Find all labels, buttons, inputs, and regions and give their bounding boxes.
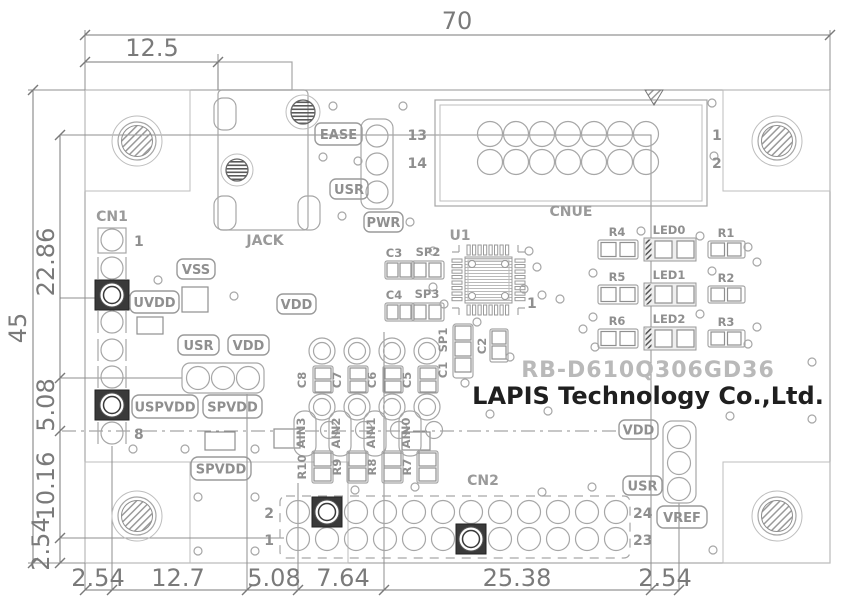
connector-cn1 [95, 228, 129, 444]
dim-jack-offset: 12.5 [125, 34, 178, 62]
label-spvdd-b: SPVDD [191, 457, 251, 480]
cn1-refdes: CN1 [96, 209, 128, 225]
label-vdd-mid: VDD [228, 335, 269, 355]
jack-refdes: JACK [245, 233, 284, 249]
svg-text:VDD: VDD [623, 424, 655, 439]
cn2-pin2-number: 2 [264, 506, 274, 522]
dim-bottom-segment: 7.64 [316, 564, 369, 592]
header-usr-vdd [182, 363, 264, 393]
usb-jack [214, 90, 320, 230]
cnue-pin13-number: 13 [408, 128, 427, 144]
svg-text:VSS: VSS [182, 263, 210, 278]
dim-bottom-segment: 2.54 [638, 564, 691, 592]
led-cathode-mark-icon [646, 329, 652, 349]
u1-refdes: U1 [449, 228, 470, 244]
pin1-marker-triangle-icon [645, 90, 663, 105]
c2-refdes: C2 [475, 338, 489, 354]
dim-left-segment: 2.54 [27, 517, 55, 570]
analog-channel-0: C5 AIN0 R7 [399, 338, 443, 483]
cap-label: C5 [400, 372, 414, 388]
cnue-pin1-number: 1 [712, 128, 722, 144]
cn2-pin23-number: 23 [633, 533, 652, 549]
label-usr-right: USR [623, 476, 662, 495]
resistor-label: R7 [400, 459, 414, 476]
label-uspvdd: USPVDD [132, 395, 198, 418]
part-number-text: RB-D610Q306GD36 [521, 358, 775, 383]
svg-text:PWR: PWR [367, 216, 401, 231]
cap-label: C8 [295, 372, 309, 388]
resistor-label: R3 [718, 315, 735, 329]
resistor-label: R6 [609, 314, 626, 328]
label-vdd-right: VDD [619, 420, 658, 439]
jack-screw-icon [291, 100, 315, 124]
resistor-label: R10 [295, 455, 309, 480]
net-label: AIN0 [399, 418, 413, 449]
resistor-label: R2 [718, 271, 735, 285]
analog-channels: C8 AIN3 R10 C7 AIN2 R9 C6 AIN1 R8 [294, 338, 443, 483]
svg-text:UVDD: UVDD [133, 296, 175, 311]
u1-pin1-number: 1 [527, 296, 537, 312]
dim-bottom-segment: 12.7 [151, 564, 204, 592]
led-label: LED1 [653, 268, 686, 282]
label-usr-mid: USR [178, 335, 219, 355]
mounting-hole-top-left [112, 116, 162, 166]
net-label: AIN1 [364, 418, 378, 449]
cap-label: C7 [330, 372, 344, 388]
jack-screw-icon [226, 159, 248, 181]
sp2-refdes: SP2 [416, 245, 441, 259]
svg-text:USR: USR [184, 339, 214, 354]
cn1-pin8-number: 8 [134, 427, 144, 443]
label-vss: VSS [177, 259, 215, 279]
led-row-1: R5 LED1 R2 [598, 268, 745, 306]
led-label: LED0 [653, 223, 686, 237]
led-label: LED2 [653, 312, 686, 326]
jack-tab [218, 62, 292, 90]
mounting-hole-bottom-right [752, 491, 802, 541]
company-name-text: LAPIS Technology Co.,Ltd. [472, 382, 824, 410]
led-cathode-mark-icon [646, 240, 652, 260]
header-right [663, 421, 696, 503]
resistor-label: R9 [330, 459, 344, 476]
cnue-pin2-number: 2 [712, 156, 722, 172]
net-label: AIN3 [294, 418, 308, 449]
label-pwr: PWR [364, 212, 403, 232]
label-vdd-jack: VDD [277, 294, 316, 314]
svg-text:VREF: VREF [663, 511, 701, 526]
branding: RB-D610Q306GD36 LAPIS Technology Co.,Ltd… [472, 358, 824, 410]
svg-text:SPVDD: SPVDD [207, 401, 258, 416]
svg-text:USPVDD: USPVDD [134, 401, 195, 416]
svg-text:USR: USR [334, 183, 364, 198]
c1-refdes: C1 [436, 362, 450, 378]
svg-text:VDD: VDD [281, 298, 313, 313]
connector-cnue [435, 90, 718, 206]
led-cathode-mark-icon [646, 285, 652, 305]
svg-text:USR: USR [628, 480, 658, 495]
led-row-2: R6 LED2 R3 [598, 312, 745, 350]
dim-left-segment: 5.08 [32, 378, 60, 431]
c3-refdes: C3 [386, 246, 402, 260]
c4-refdes: C4 [386, 288, 402, 302]
label-vref: VREF [657, 506, 707, 528]
sp3-refdes: SP3 [415, 287, 440, 301]
cnue-pin14-number: 14 [408, 156, 428, 172]
cn2-pin1-number: 1 [264, 533, 274, 549]
resistor-label: R5 [609, 270, 626, 284]
dim-bottom-segment: 2.54 [71, 564, 124, 592]
cnue-refdes: CNUE [550, 204, 593, 220]
label-spvdd-a: SPVDD [203, 395, 262, 418]
connector-cn2 [280, 496, 630, 558]
resistor-label: R8 [365, 459, 379, 476]
ic-u1 [452, 245, 525, 315]
sp1-refdes: SP1 [436, 328, 450, 353]
dim-overall-height: 45 [4, 313, 32, 344]
label-uvdd: UVDD [130, 291, 179, 313]
dim-overall-width: 70 [442, 7, 473, 35]
svg-text:SPVDD: SPVDD [196, 463, 247, 478]
dim-bottom-segment: 5.08 [247, 564, 300, 592]
pcb-dimension-drawing: C8 AIN3 R10 C7 AIN2 R9 C6 AIN1 R8 [0, 0, 850, 611]
mounting-hole-top-right [752, 116, 802, 166]
cn2-pin24-number: 24 [633, 506, 653, 522]
cn1-pin1-number: 1 [134, 234, 144, 250]
net-label: AIN2 [329, 418, 343, 449]
drawing-canvas: C8 AIN3 R10 C7 AIN2 R9 C6 AIN1 R8 [0, 0, 850, 611]
mounting-hole-bottom-left [112, 491, 162, 541]
resistor-label: R4 [609, 225, 626, 239]
label-ease: EASE [315, 123, 362, 145]
header-pwr [361, 119, 393, 209]
label-usr-top: USR [330, 179, 368, 199]
led-matrix: R4 LED0 R1 R5 LED1 R2 R6 LED2 R3 [598, 223, 745, 350]
dim-left-segment: 10.16 [32, 452, 60, 521]
cap-label: C6 [365, 372, 379, 388]
cn2-refdes: CN2 [467, 473, 499, 489]
dim-bottom-segment: 25.38 [483, 564, 552, 592]
svg-text:VDD: VDD [233, 339, 265, 354]
led-row-0: R4 LED0 R1 [598, 223, 745, 261]
dim-left-segment: 22.86 [32, 228, 60, 297]
resistor-label: R1 [718, 226, 735, 240]
svg-text:EASE: EASE [320, 128, 357, 143]
